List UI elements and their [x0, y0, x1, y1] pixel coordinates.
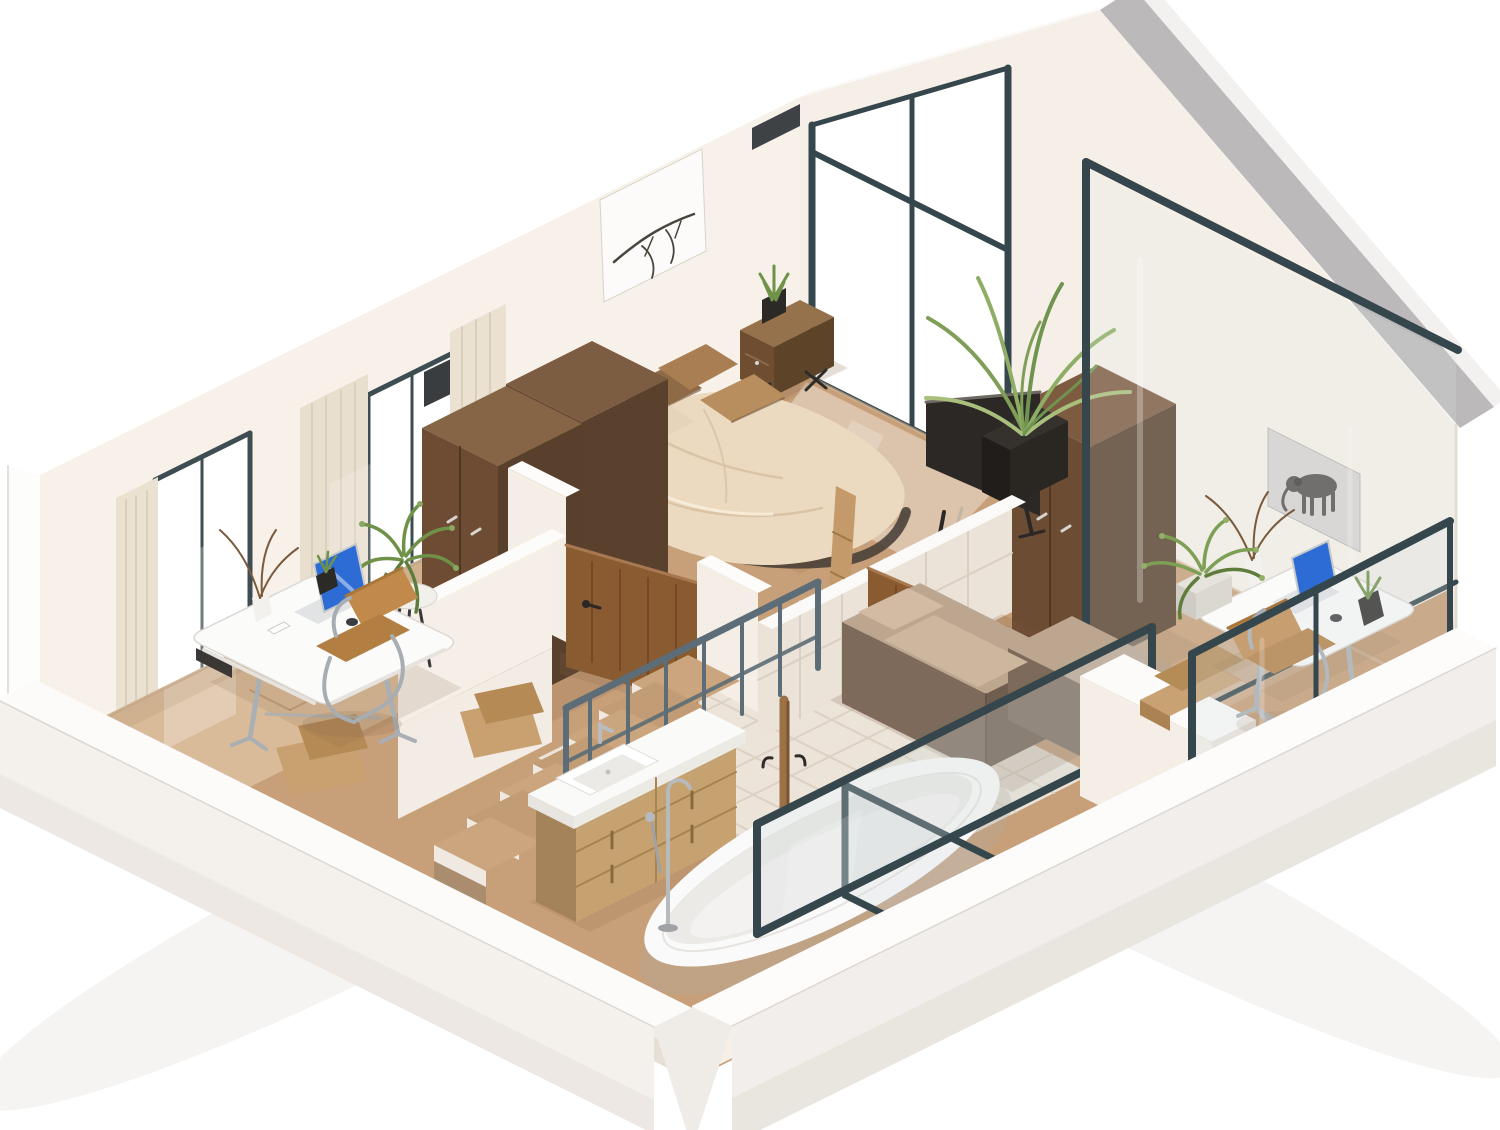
- scene-svg: [0, 0, 1500, 1130]
- tub-sprayer-head: [645, 812, 655, 822]
- west-corner-column: [8, 466, 40, 712]
- sink-drain: [606, 770, 611, 775]
- study-floorplant-tip: [1141, 563, 1147, 569]
- study-floorplant-tip: [1259, 575, 1265, 581]
- study-floorplant-tip: [1253, 547, 1259, 553]
- floorplan-render: [0, 0, 1500, 1130]
- study-floorplant-tip: [1223, 517, 1229, 523]
- office-plant-tip: [359, 521, 365, 527]
- office-plant-tip: [449, 525, 455, 531]
- nightstand-pull: [755, 361, 759, 365]
- chair-shadow: [302, 711, 402, 737]
- wall-tip: [654, 1008, 732, 1130]
- tub-faucet-base: [658, 924, 678, 932]
- study-floorplant-tip: [1159, 533, 1165, 539]
- office-plant-tip: [453, 565, 459, 571]
- desk-mouse: [346, 618, 358, 626]
- office-plant-tip: [417, 501, 423, 507]
